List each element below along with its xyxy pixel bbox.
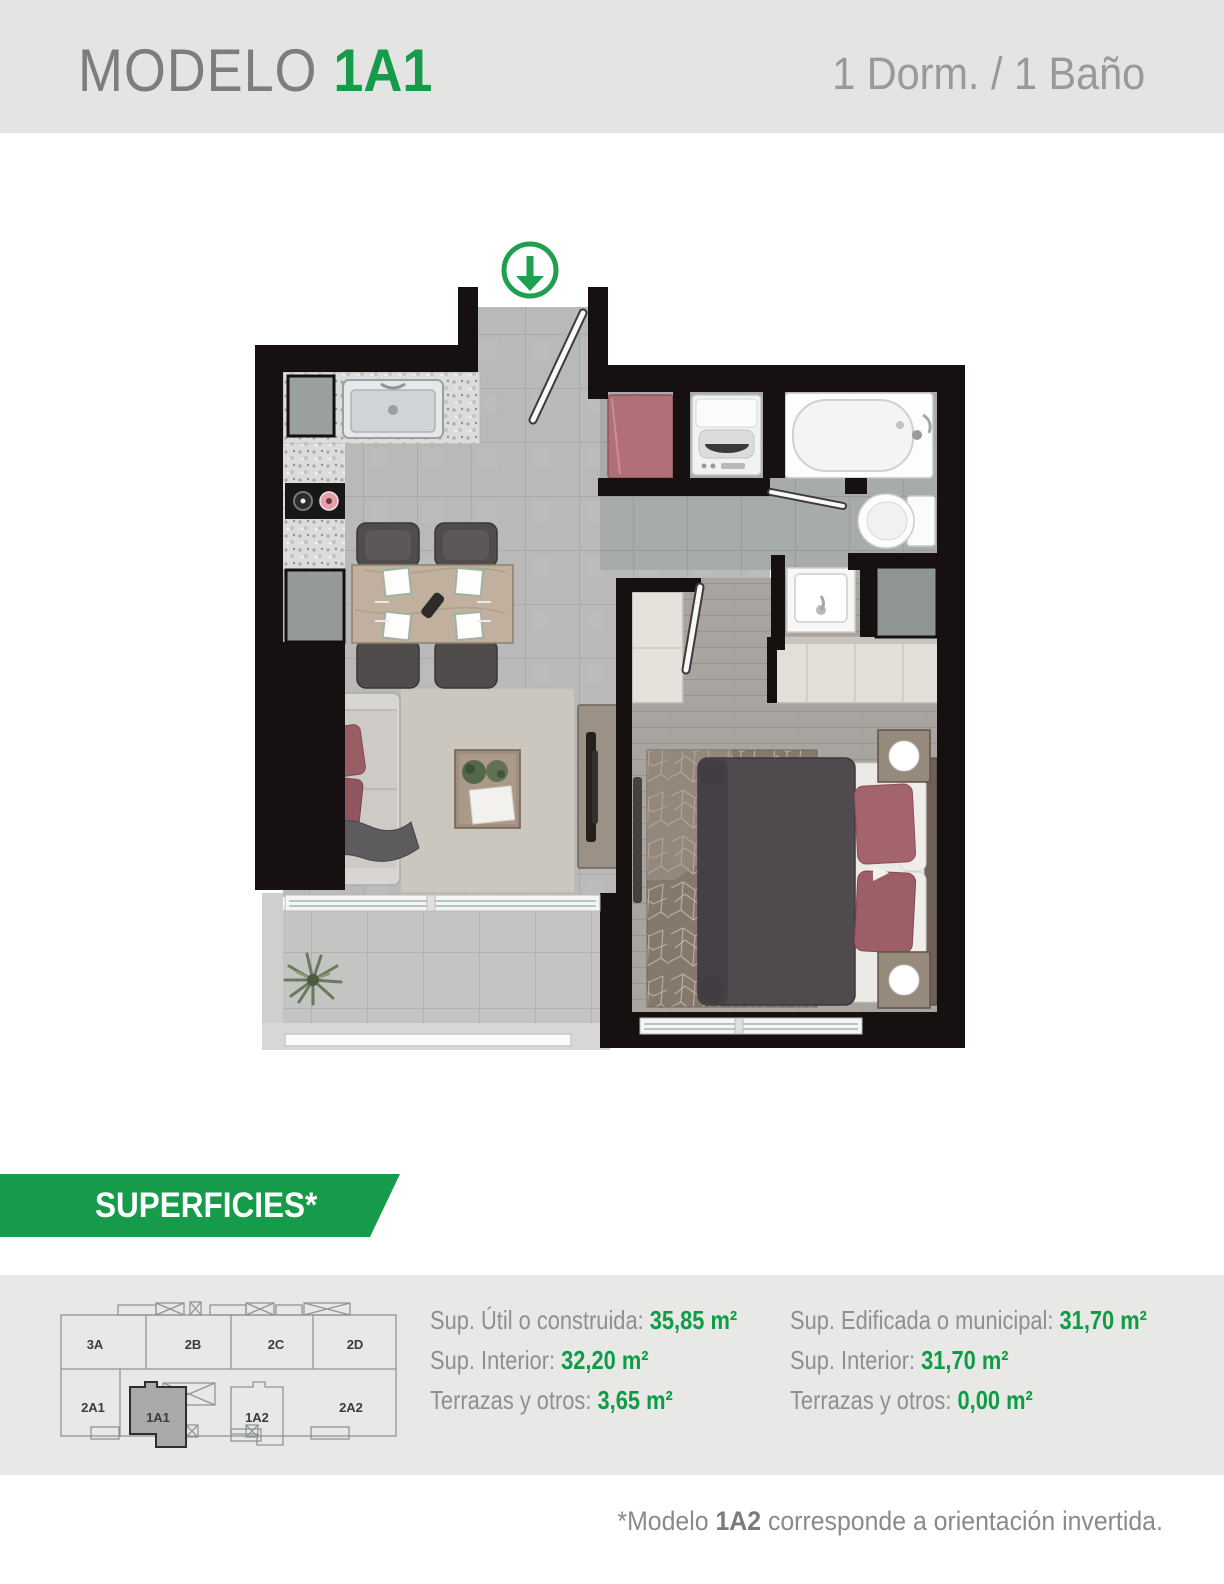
bedroom-window xyxy=(640,1018,862,1034)
nightstand xyxy=(878,730,930,782)
superficies-banner: SUPERFICIES* xyxy=(0,1174,400,1237)
cooktop xyxy=(285,483,345,519)
bed-pillow xyxy=(854,784,916,865)
unit-type-subtitle: 1 Dorm. / 1 Baño xyxy=(805,48,1145,100)
measurement-row: Sup. Útil o construida: 35,85 m² xyxy=(430,1300,737,1340)
model-title-prefix: MODELO xyxy=(78,37,333,104)
measurement-row: Sup. Interior: 32,20 m² xyxy=(430,1340,737,1380)
entrance-arrow-icon xyxy=(504,244,556,296)
living-window xyxy=(285,895,600,911)
superficies-banner-label: SUPERFICIES* xyxy=(95,1174,317,1237)
bed xyxy=(647,730,937,1008)
keyplan-label: 2A1 xyxy=(81,1400,105,1415)
keyplan-label: 2A2 xyxy=(339,1400,363,1415)
page-header: MODELO 1A1 1 Dorm. / 1 Baño xyxy=(0,0,1224,133)
keyplan-diagram: 3A 2B 2C 2D 2A1 1A1 1A2 2A2 xyxy=(60,1297,400,1455)
measurement-row: Terrazas y otros: 3,65 m² xyxy=(430,1380,737,1420)
page-title: MODELO 1A1 xyxy=(78,36,472,105)
coffee-table xyxy=(455,750,520,828)
kitchen-sink xyxy=(343,380,443,438)
elevator-shaft xyxy=(156,1302,350,1315)
keyplan-label: 1A2 xyxy=(245,1410,269,1425)
model-title-code: 1A1 xyxy=(333,37,432,104)
keyplan-label: 3A xyxy=(87,1337,104,1352)
bedroom-wardrobe xyxy=(632,592,683,703)
table-plant xyxy=(486,760,508,782)
lamp xyxy=(889,965,919,995)
washing-machine xyxy=(692,395,761,475)
dining-table xyxy=(352,565,513,643)
bedroom-closet xyxy=(772,637,938,703)
bathroom-vanity xyxy=(787,568,855,632)
keyplan-label: 2D xyxy=(347,1337,364,1352)
terrace-railing xyxy=(285,1034,571,1046)
nightstand xyxy=(878,952,930,1008)
footnote-model-code: 1A2 xyxy=(716,1506,762,1536)
superficies-left-column: Sup. Útil o construida: 35,85 m² Sup. In… xyxy=(430,1300,796,1420)
lamp xyxy=(889,741,919,771)
measurement-row: Sup. Interior: 31,70 m² xyxy=(790,1340,1147,1380)
keyplan-label: 2B xyxy=(185,1337,202,1352)
table-tray xyxy=(469,786,514,824)
bedroom-curtain xyxy=(633,777,642,903)
floorplan-render xyxy=(255,235,965,1050)
toilet xyxy=(858,494,935,548)
measurement-row: Terrazas y otros: 0,00 m² xyxy=(790,1380,1147,1420)
terrace xyxy=(262,893,610,1050)
superficies-right-column: Sup. Edificada o municipal: 31,70 m² Sup… xyxy=(790,1300,1215,1420)
tv-console xyxy=(578,705,618,868)
storage-cabinet xyxy=(608,395,673,478)
bed-pillow xyxy=(854,871,916,954)
orientation-footnote: *Modelo 1A2 corresponde a orientación in… xyxy=(570,1506,1163,1537)
measurement-row: Sup. Edificada o municipal: 31,70 m² xyxy=(790,1300,1147,1340)
keyplan-label: 2C xyxy=(268,1337,285,1352)
bathtub xyxy=(785,393,933,478)
keyplan-label-highlighted: 1A1 xyxy=(146,1410,170,1425)
